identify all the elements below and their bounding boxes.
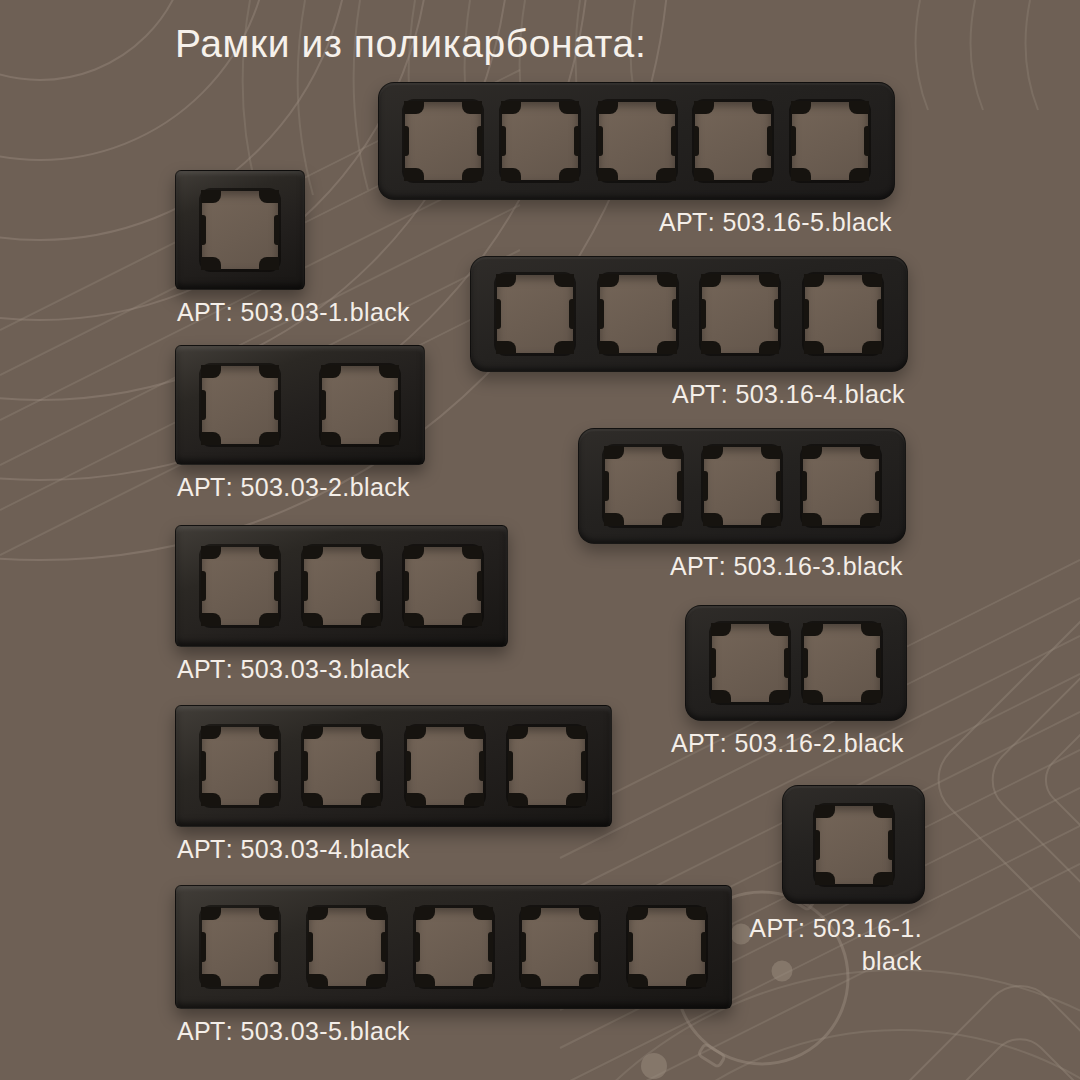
opening-corner-tab [259,432,279,445]
opening-corner-tab [604,446,624,459]
frame-opening [509,727,585,805]
opening-corner-tab [501,101,521,114]
frame-opening [804,624,880,702]
opening-corner-tab [657,274,677,287]
opening-corner-tab [404,168,424,181]
opening-corner-tab [703,446,723,459]
frame-4-gang [175,705,612,827]
product-503-16-1: АРТ: 503.16-1. black [782,785,925,904]
opening-corner-tab [656,168,676,181]
frame-opening [712,624,788,702]
frame-2-gang [685,605,907,721]
opening-corner-tab [321,432,341,445]
opening-corner-tab [769,690,789,703]
product-503-03-1: АРТ: 503.03-1.black [175,170,305,290]
opening-corner-tab [201,613,221,626]
opening-corner-tab [259,613,279,626]
opening-corner-tab [473,907,493,920]
frame-opening [702,275,778,353]
opening-corner-tab [861,623,881,636]
opening-corner-tab [259,907,279,920]
frame-1-gang [175,170,305,290]
opening-corner-tab [303,793,323,806]
product-503-16-3: АРТ: 503.16-3.black [578,428,906,544]
opening-corner-tab [361,546,381,559]
opening-corner-tab [379,365,399,378]
product-art-label: АРТ: 503.16-1. black [749,912,922,977]
opening-corner-tab [579,974,599,987]
opening-corner-tab [415,974,435,987]
opening-corner-tab [462,168,482,181]
product-503-16-4: АРТ: 503.16-4.black [470,256,908,372]
product-art-label: АРТ: 503.03-5.black [177,1017,410,1046]
opening-corner-tab [849,101,869,114]
opening-corner-tab [464,726,484,739]
opening-corner-tab [598,101,618,114]
opening-corner-tab [201,974,221,987]
opening-corner-tab [303,613,323,626]
opening-corner-tab [303,726,323,739]
opening-corner-tab [361,726,381,739]
opening-corner-tab [849,168,869,181]
product-art-label: АРТ: 503.03-3.black [177,655,410,684]
opening-corner-tab [860,446,880,459]
opening-corner-tab [259,974,279,987]
product-503-03-5: АРТ: 503.03-5.black [175,885,732,1009]
frame-opening [605,447,681,525]
opening-corner-tab [559,101,579,114]
opening-corner-tab [366,974,386,987]
opening-corner-tab [761,513,781,526]
opening-corner-tab [686,907,706,920]
opening-corner-tab [201,726,221,739]
opening-corner-tab [791,168,811,181]
opening-corner-tab [628,907,648,920]
frame-opening [202,366,278,444]
frame-opening [405,102,481,180]
opening-corner-tab [508,793,528,806]
opening-corner-tab [862,274,882,287]
opening-corner-tab [599,274,619,287]
product-art-label-line1: АРТ: 503.16-1. [749,912,922,945]
opening-corner-tab [462,546,482,559]
frame-opening [816,806,892,884]
opening-corner-tab [308,974,328,987]
frame-5-gang [378,82,895,200]
opening-corner-tab [501,168,521,181]
opening-corner-tab [657,341,677,354]
opening-corner-tab [559,168,579,181]
opening-corner-tab [361,613,381,626]
opening-corner-tab [554,341,574,354]
opening-corner-tab [791,101,811,114]
opening-corner-tab [201,907,221,920]
opening-corner-tab [259,546,279,559]
opening-corner-tab [598,168,618,181]
opening-corner-tab [259,365,279,378]
opening-corner-tab [404,546,424,559]
opening-corner-tab [662,446,682,459]
opening-corner-tab [404,613,424,626]
opening-corner-tab [604,513,624,526]
frame-opening [792,102,868,180]
frame-opening [309,908,385,986]
frame-3-gang [578,428,906,544]
frame-opening [322,366,398,444]
opening-corner-tab [761,446,781,459]
opening-corner-tab [694,168,714,181]
opening-corner-tab [321,365,341,378]
frame-opening [704,447,780,525]
opening-corner-tab [201,432,221,445]
product-art-label: АРТ: 503.03-4.black [177,835,410,864]
opening-corner-tab [861,690,881,703]
frame-opening [805,275,881,353]
opening-corner-tab [873,872,893,885]
opening-corner-tab [379,432,399,445]
opening-corner-tab [579,907,599,920]
opening-corner-tab [656,101,676,114]
opening-corner-tab [201,793,221,806]
opening-corner-tab [804,341,824,354]
opening-corner-tab [803,690,823,703]
opening-corner-tab [259,257,279,270]
opening-corner-tab [769,623,789,636]
opening-corner-tab [804,274,824,287]
opening-corner-tab [201,365,221,378]
socket-hole-icon [731,924,752,945]
catalog-page: Рамки из поликарбоната: АРТ: 503.03-1.bl… [0,0,1080,1080]
opening-corner-tab [361,793,381,806]
product-503-03-2: АРТ: 503.03-2.black [175,345,425,465]
opening-corner-tab [462,613,482,626]
frame-opening [502,102,578,180]
opening-corner-tab [259,793,279,806]
product-art-label: АРТ: 503.03-2.black [177,473,410,502]
frame-3-gang [175,525,508,647]
frame-opening [304,727,380,805]
opening-corner-tab [752,168,772,181]
opening-corner-tab [554,274,574,287]
opening-corner-tab [711,690,731,703]
opening-corner-tab [496,274,516,287]
product-art-label: АРТ: 503.16-5.black [659,208,892,237]
opening-corner-tab [366,907,386,920]
frame-opening [407,727,483,805]
opening-corner-tab [803,623,823,636]
opening-corner-tab [860,513,880,526]
product-art-label: АРТ: 503.16-4.black [672,380,905,409]
page-title: Рамки из поликарбоната: [175,22,646,66]
opening-corner-tab [415,907,435,920]
frame-opening [600,275,676,353]
product-art-label: АРТ: 503.16-3.black [670,552,903,581]
opening-corner-tab [599,341,619,354]
opening-corner-tab [303,546,323,559]
opening-corner-tab [404,101,424,114]
opening-corner-tab [686,974,706,987]
opening-corner-tab [462,101,482,114]
frame-opening [803,447,879,525]
opening-corner-tab [464,793,484,806]
opening-corner-tab [201,190,221,203]
product-art-label: АРТ: 503.16-2.black [671,729,904,758]
frame-opening [599,102,675,180]
opening-corner-tab [406,726,426,739]
opening-corner-tab [508,726,528,739]
opening-corner-tab [496,341,516,354]
opening-corner-tab [862,341,882,354]
opening-corner-tab [815,872,835,885]
opening-corner-tab [308,907,328,920]
opening-corner-tab [628,974,648,987]
frame-opening [497,275,573,353]
opening-corner-tab [201,546,221,559]
opening-corner-tab [662,513,682,526]
product-art-label: АРТ: 503.03-1.black [177,298,410,327]
opening-corner-tab [521,974,541,987]
frame-1-gang [782,785,925,904]
opening-corner-tab [566,793,586,806]
opening-corner-tab [694,101,714,114]
frame-opening [405,547,481,625]
opening-corner-tab [759,341,779,354]
opening-corner-tab [701,274,721,287]
product-503-16-5: АРТ: 503.16-5.black [378,82,895,200]
product-503-03-4: АРТ: 503.03-4.black [175,705,612,827]
opening-corner-tab [873,805,893,818]
opening-corner-tab [802,513,822,526]
frame-opening [695,102,771,180]
frame-5-gang [175,885,732,1009]
product-art-label-line2: black [749,945,922,978]
opening-corner-tab [259,190,279,203]
frame-opening [629,908,705,986]
frame-4-gang [470,256,908,372]
product-503-16-2: АРТ: 503.16-2.black [685,605,907,721]
frame-opening [522,908,598,986]
frame-opening [202,727,278,805]
opening-corner-tab [521,907,541,920]
opening-corner-tab [752,101,772,114]
opening-corner-tab [703,513,723,526]
opening-corner-tab [759,274,779,287]
opening-corner-tab [406,793,426,806]
opening-corner-tab [802,446,822,459]
opening-corner-tab [815,805,835,818]
product-503-03-3: АРТ: 503.03-3.black [175,525,508,647]
frame-opening [202,547,278,625]
opening-corner-tab [473,974,493,987]
frame-opening [304,547,380,625]
opening-corner-tab [701,341,721,354]
frame-2-gang [175,345,425,465]
opening-corner-tab [259,726,279,739]
frame-opening [202,191,278,269]
opening-corner-tab [566,726,586,739]
opening-corner-tab [711,623,731,636]
opening-corner-tab [201,257,221,270]
frame-opening [202,908,278,986]
frame-opening [416,908,492,986]
